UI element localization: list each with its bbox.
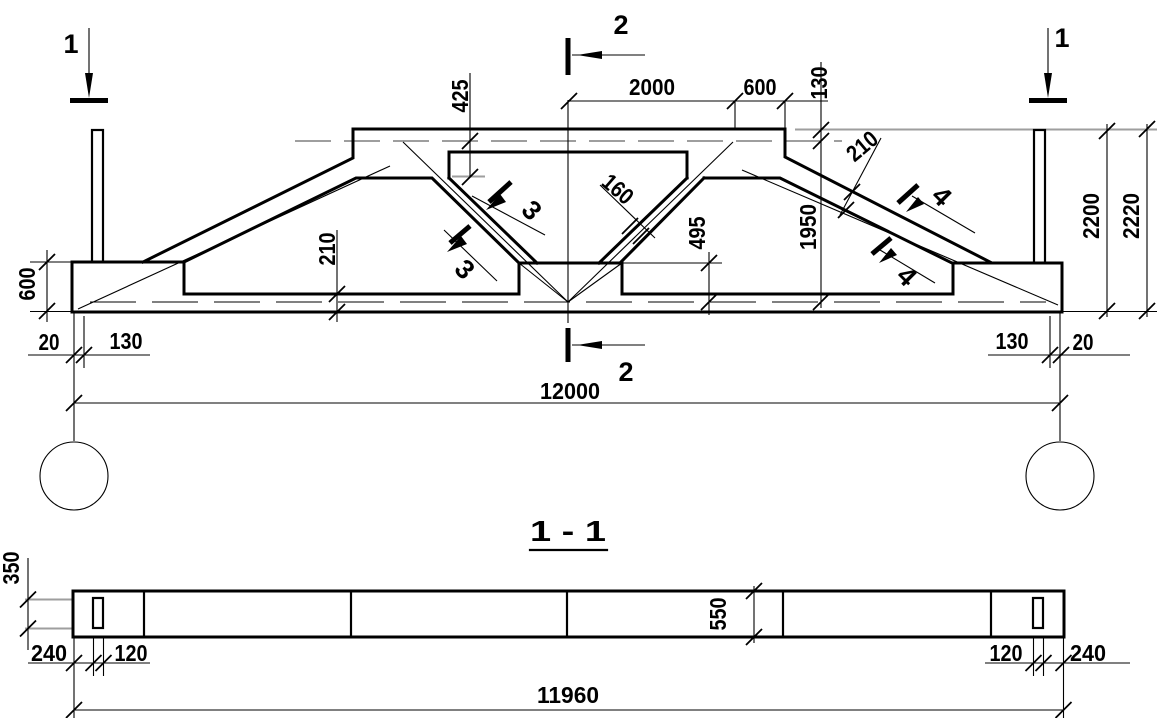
dim-flange-width: 350 <box>0 552 24 585</box>
dim-bottom-chord-depth: 210 <box>314 233 340 266</box>
dim-left-end-offset: 20 <box>39 329 60 355</box>
dim-top-chord-thickness: 210 <box>841 125 883 166</box>
label-cut4-lower: 4 <box>891 260 923 292</box>
label-cut2-bottom: 2 <box>618 357 633 387</box>
dim-left-end: 240 <box>31 640 67 666</box>
axis-lines <box>78 100 1058 323</box>
right-post <box>1034 130 1045 263</box>
dim-right-end-offset: 20 <box>1073 329 1094 355</box>
dim-height-total: 2220 <box>1118 193 1144 239</box>
dim-beam-length: 11960 <box>537 682 599 708</box>
dim-right-bearing: 130 <box>996 328 1029 354</box>
dim-support-height: 600 <box>14 268 40 301</box>
dim-node-height: 495 <box>684 216 710 249</box>
dim-top-end-panel: 600 <box>744 74 777 100</box>
section-view-1-1: 1 - 1 <box>0 516 1130 718</box>
dim-chord-depth: 425 <box>447 79 473 112</box>
label-cut2-top: 2 <box>613 10 628 40</box>
dim-height-to-slab: 2200 <box>1078 193 1104 239</box>
label-cut1-right: 1 <box>1054 23 1069 53</box>
label-cut1-left: 1 <box>63 29 78 59</box>
grid-bubble-right <box>1026 442 1094 510</box>
dim-truss-inner-height: 1950 <box>795 204 821 250</box>
section-title: 1 - 1 <box>530 516 606 548</box>
dim-beam-width: 550 <box>705 598 731 631</box>
grid-bubbles <box>40 442 1094 510</box>
drawing-canvas: 1 1 2 2 3 3 4 4 2000 600 130 425 1950 22… <box>0 0 1161 718</box>
section-dimension-texts: 350 550 240 120 120 240 11960 <box>0 552 1106 709</box>
dim-diagonal-thickness: 160 <box>597 168 639 209</box>
dim-left-bearing: 130 <box>110 328 143 354</box>
left-post <box>92 130 103 262</box>
label-cut3-lower: 3 <box>449 253 481 285</box>
right-anchor-hole <box>1033 598 1043 628</box>
dim-left-hole-width: 120 <box>115 640 148 666</box>
grid-bubble-left <box>40 442 108 510</box>
beam-plan-outline <box>73 591 1064 637</box>
dim-top-half-span: 2000 <box>629 74 675 100</box>
dim-slab-thickness: 130 <box>806 67 832 100</box>
truss-engineering-drawing: 1 1 2 2 3 3 4 4 2000 600 130 425 1950 22… <box>0 0 1161 718</box>
cut-mark-2-top <box>568 38 645 75</box>
beam-division-lines <box>144 591 991 637</box>
left-anchor-hole <box>93 598 103 628</box>
dim-right-end: 240 <box>1070 640 1106 666</box>
dim-span: 12000 <box>540 378 600 404</box>
truss-outline <box>72 129 1062 312</box>
dim-right-hole-width: 120 <box>990 640 1023 666</box>
